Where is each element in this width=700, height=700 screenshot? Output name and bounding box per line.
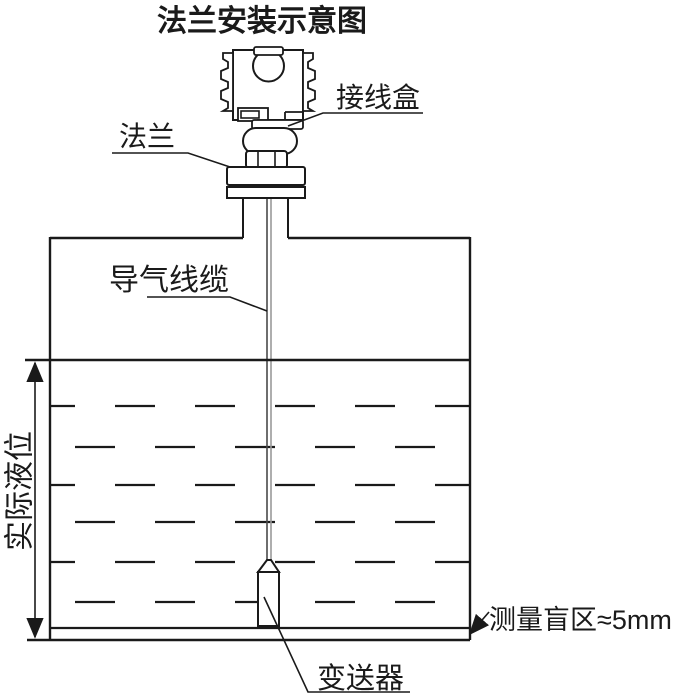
flange-plate bbox=[227, 167, 305, 185]
probe-body bbox=[258, 572, 279, 626]
blind-zone-arrow bbox=[470, 612, 489, 634]
top-cap-tab bbox=[254, 47, 283, 55]
junction-box-leader bbox=[288, 113, 423, 126]
actual-level-label: 实际液位 bbox=[4, 431, 37, 551]
vent-cable-label: 导气线缆 bbox=[109, 264, 229, 297]
vent-cable bbox=[267, 186, 271, 564]
transmitter-label: 变送器 bbox=[317, 662, 404, 695]
blind-zone-label: 测量盲区≈5mm bbox=[489, 605, 672, 635]
transmitter-probe bbox=[258, 560, 279, 626]
level-dimension: 实际液位 bbox=[4, 363, 37, 637]
nozzle-neck bbox=[243, 198, 288, 238]
diagram-canvas: 实际液位 法兰安装示意图 接线盒 法兰 导气线缆 变送器 测量盲区≈5mm bbox=[0, 0, 700, 700]
transmitter-head bbox=[221, 47, 315, 238]
hex-nut bbox=[246, 151, 287, 168]
housing-left-cover bbox=[221, 53, 233, 111]
housing-right-cover bbox=[303, 53, 315, 111]
vent-cable-leader bbox=[147, 297, 267, 311]
terminal-block-inner bbox=[241, 111, 259, 118]
flange-installation-schematic: 实际液位 法兰安装示意图 接线盒 法兰 导气线缆 变送器 测量盲区≈5mm bbox=[0, 0, 700, 700]
junction-box-label: 接线盒 bbox=[336, 82, 420, 113]
flange-label: 法兰 bbox=[119, 121, 175, 152]
diagram-title: 法兰安装示意图 bbox=[157, 4, 367, 38]
tank-outline bbox=[27, 237, 470, 640]
flange-leader bbox=[112, 153, 230, 167]
nozzle-flange bbox=[227, 187, 305, 198]
